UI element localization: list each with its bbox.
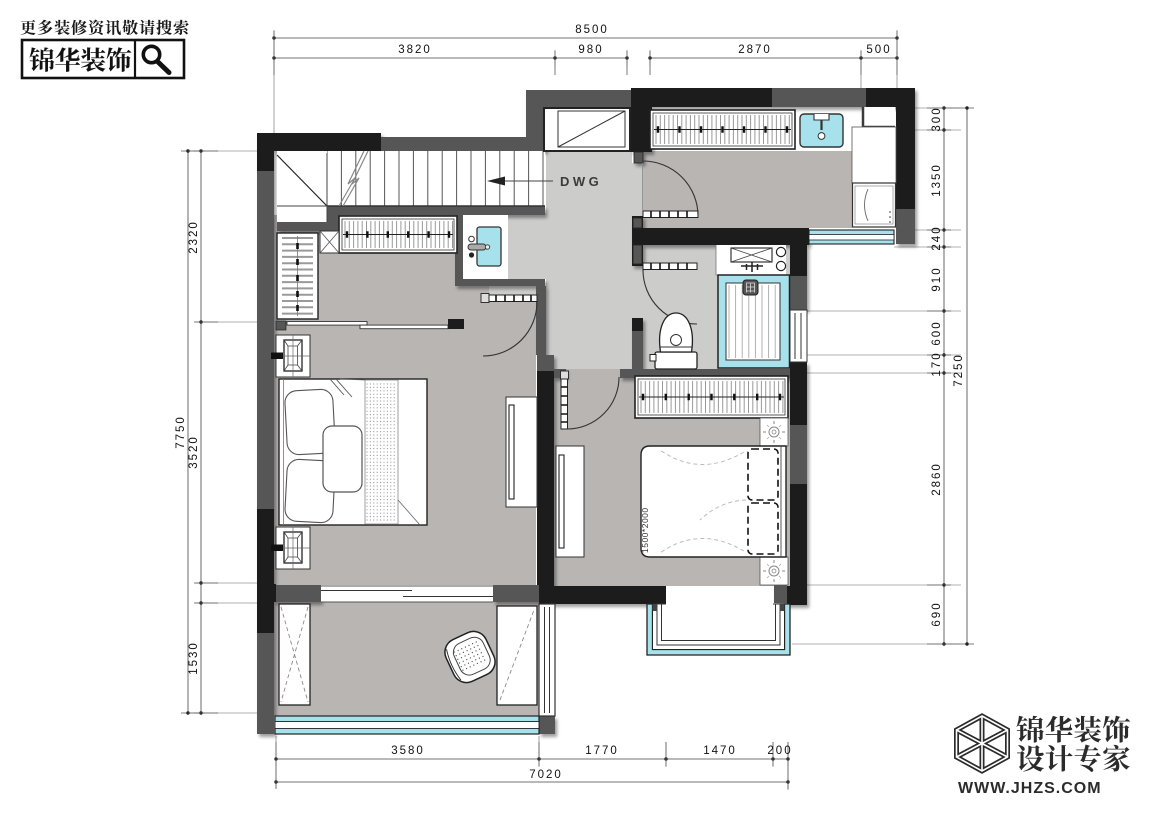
svg-text:170: 170: [931, 351, 943, 376]
svg-text:300: 300: [931, 106, 943, 131]
svg-text:3820: 3820: [398, 44, 432, 56]
svg-text:3580: 3580: [391, 745, 425, 757]
svg-text:2860: 2860: [931, 462, 943, 496]
svg-text:1350: 1350: [931, 163, 943, 197]
svg-text:980: 980: [578, 44, 603, 56]
svg-text:8500: 8500: [575, 24, 609, 36]
svg-text:1770: 1770: [585, 745, 619, 757]
svg-text:DWG: DWG: [560, 174, 602, 189]
svg-text:600: 600: [931, 320, 943, 345]
svg-text:7750: 7750: [175, 415, 187, 449]
svg-text:WWW.JHZS.COM: WWW.JHZS.COM: [958, 780, 1102, 797]
svg-text:240: 240: [931, 225, 943, 250]
svg-text:2870: 2870: [738, 44, 772, 56]
svg-text:7020: 7020: [529, 769, 563, 781]
svg-text:1500*2000: 1500*2000: [640, 507, 650, 553]
svg-text:500: 500: [866, 44, 891, 56]
svg-text:1530: 1530: [188, 641, 200, 675]
svg-text:1470: 1470: [703, 745, 737, 757]
svg-text:690: 690: [931, 601, 943, 626]
svg-text:7250: 7250: [953, 353, 965, 387]
svg-text:2320: 2320: [188, 220, 200, 254]
svg-text:3520: 3520: [188, 435, 200, 469]
svg-text:910: 910: [931, 266, 943, 291]
svg-text:200: 200: [767, 745, 792, 757]
